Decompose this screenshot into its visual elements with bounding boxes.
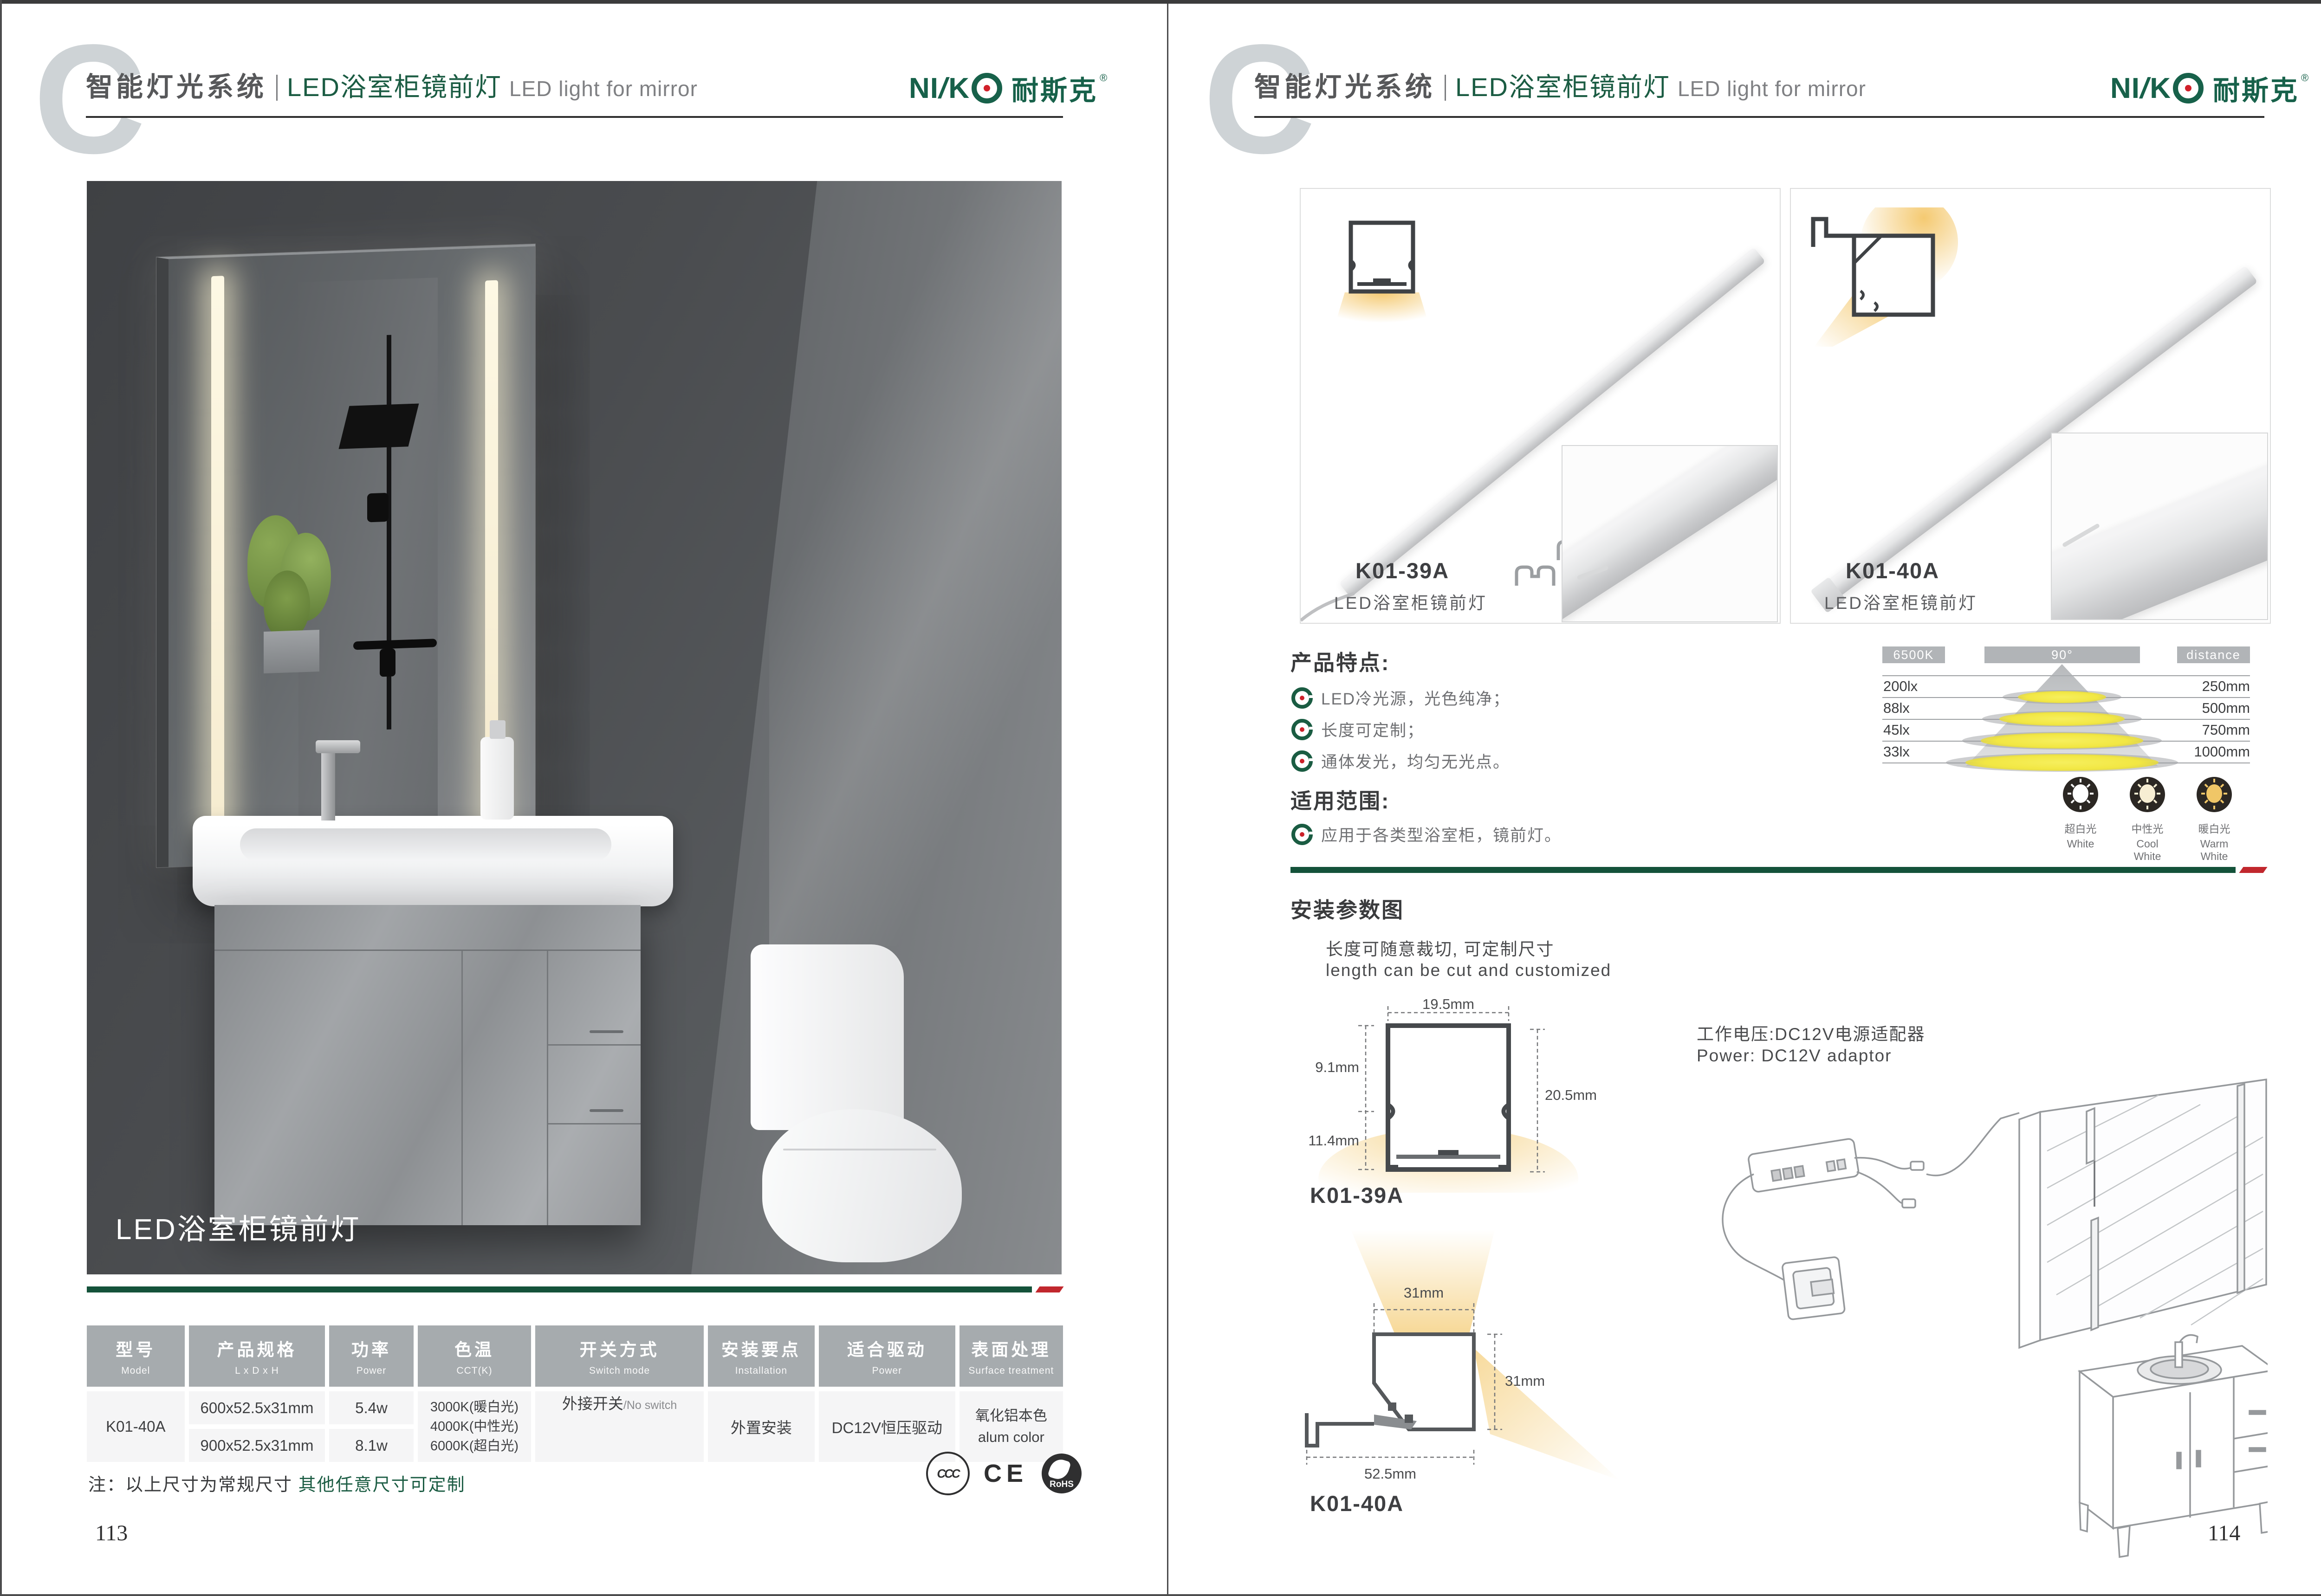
- cell-power-2: 8.1w: [329, 1429, 413, 1462]
- lux-label: 33lx: [1883, 743, 1910, 760]
- rohs-icon: RoHS: [1042, 1454, 1082, 1493]
- drawing-model-k01-39a: K01-39A: [1310, 1182, 1404, 1208]
- page-gutter-line: [1167, 4, 1168, 1596]
- chart-chip-distance: distance: [2177, 646, 2250, 663]
- vanity-handle-1: [590, 1030, 623, 1033]
- divider-green-left: [87, 1286, 1032, 1292]
- cell-cct: 3000K(暖白光) 4000K(中性光) 6000K(超白光): [418, 1391, 532, 1462]
- header-divider-bar: [276, 75, 278, 101]
- mirror-led-strip-left: [211, 276, 224, 833]
- cct-swatches: 超白光 White 中性光 Cool White 暖白光 W: [2055, 776, 2239, 863]
- product-card-k01-40a: K01-40A LED浴室柜镜前灯: [1790, 188, 2271, 624]
- cert-icons: CCC CE RoHS: [926, 1452, 1082, 1495]
- swatch-cool-white: 中性光 Cool White: [2122, 776, 2172, 863]
- cut-note-cn: 长度可随意裁切, 可定制尺寸: [1326, 935, 1555, 960]
- cell-sizes: 600x52.5x31mm 900x52.5x31mm: [189, 1391, 325, 1462]
- header-rule: [86, 116, 1063, 118]
- col-header-driver: 适合驱动Power: [819, 1325, 955, 1387]
- faucet: [321, 746, 335, 821]
- install-section-title: 安装参数图: [1290, 893, 1404, 924]
- col-header-installation: 安装要点Installation: [708, 1325, 815, 1387]
- dim-40-right: 31mm: [1505, 1373, 1545, 1389]
- brand-logo-o-icon: [2173, 73, 2204, 103]
- catalog-spread: C 智能灯光系统 LED浴室柜镜前灯 LED light for mirror …: [0, 0, 2321, 1596]
- dim-40-bottom: 52.5mm: [1337, 1466, 1444, 1482]
- col-header-switch: 开关方式Switch mode: [535, 1325, 703, 1387]
- swatch-white: 超白光 White: [2055, 776, 2106, 863]
- vanity-right-seam: [547, 951, 548, 1225]
- bulb-icon-cool-white: [2129, 776, 2166, 813]
- brand-logo-right: NI/K 耐斯克 ®: [2110, 69, 2308, 108]
- illuminance-chart: 6500K 90° distance 200lx 88lx 45lx 33lx …: [1882, 646, 2267, 773]
- cell-size-1: 600x52.5x31mm: [189, 1391, 325, 1424]
- power-note-en: Power: DC12V adaptor: [1697, 1046, 1892, 1066]
- vanity-drawer-seam-2: [547, 1123, 641, 1124]
- mirror-cabinet: [156, 244, 535, 867]
- brand-logo-o-icon: [972, 73, 1002, 103]
- size-note: 注：以上尺寸为常规尺寸 其他任意尺寸可定制: [88, 1470, 466, 1496]
- lux-label: 45lx: [1883, 722, 1910, 738]
- chart-chip-cct: 6500K: [1882, 646, 1945, 663]
- toilet-seat-line: [783, 1149, 936, 1150]
- product-model: K01-40A: [1846, 558, 1939, 583]
- page-header-right: 智能灯光系统 LED浴室柜镜前灯 LED light for mirror: [1254, 65, 1866, 104]
- dim-39-left-lower: 11.4mm: [1294, 1132, 1359, 1149]
- toilet-tank: [751, 944, 904, 1130]
- brand-logo-text: NI: [909, 72, 939, 105]
- photo-caption: LED浴室柜镜前灯: [116, 1206, 361, 1247]
- dim-39-right: 20.5mm: [1545, 1087, 1597, 1104]
- page-header: 智能灯光系统 LED浴室柜镜前灯 LED light for mirror: [86, 65, 698, 104]
- divider-red-left: [1035, 1286, 1063, 1292]
- cell-switch: 外接开关 /No switch: [535, 1391, 703, 1462]
- sink-inner-shadow: [240, 828, 611, 861]
- reflected-hand-shower: [367, 493, 389, 523]
- header-category: 智能灯光系统: [86, 65, 267, 104]
- ccc-icon: CCC: [926, 1452, 970, 1495]
- photo-light-streak: [769, 181, 1062, 946]
- profile-section-icon: [1333, 214, 1431, 330]
- reflected-plant: [238, 513, 345, 674]
- cell-power-1: 5.4w: [329, 1391, 413, 1424]
- product-model: K01-39A: [1355, 558, 1449, 583]
- dim-39-top: 19.5mm: [1386, 996, 1511, 1013]
- ce-icon: CE: [984, 1459, 1028, 1488]
- cell-powers: 5.4w 8.1w: [329, 1391, 413, 1462]
- lux-label: 200lx: [1883, 678, 1918, 695]
- spec-table-header-row: 型号Model 产品规格L x D x H 功率Power 色温CCT(K) 开…: [87, 1325, 1063, 1387]
- distance-label: 750mm: [2179, 722, 2250, 738]
- cell-installation: 外置安装: [708, 1391, 815, 1462]
- bulb-icon-white: [2062, 776, 2099, 813]
- col-header-power: 功率Power: [329, 1325, 413, 1387]
- vanity-cabinet: [214, 905, 641, 1225]
- bathroom-photo: LED浴室柜镜前灯: [87, 181, 1062, 1274]
- frame-left: [0, 0, 2, 1596]
- vanity-drawer-seam-1: [547, 1044, 641, 1046]
- product-name: LED浴室柜镜前灯: [1824, 589, 1977, 614]
- size-note-black: 注：以上尺寸为常规尺寸: [88, 1475, 298, 1495]
- vanity-top-seam: [214, 950, 641, 951]
- divider-green-right: [1290, 867, 2236, 873]
- header-title-en: LED light for mirror: [509, 76, 698, 101]
- product-card-k01-39a: K01-39A LED浴室柜镜前灯: [1300, 188, 1781, 624]
- feature-item: 通体发光，均匀无光点。: [1291, 749, 1510, 773]
- page-number-right: 114: [2208, 1520, 2240, 1546]
- spec-table-value-row: K01-40A 600x52.5x31mm 900x52.5x31mm 5.4w…: [87, 1391, 1063, 1462]
- plant-pot: [264, 630, 319, 673]
- section-drawing-k01-40a: [1295, 1230, 1620, 1490]
- page-number-left: 113: [95, 1520, 128, 1546]
- features-title: 产品特点:: [1290, 646, 1390, 677]
- col-header-surface: 表面处理Surface treatment: [960, 1325, 1063, 1387]
- application-item: 应用于各类型浴室柜，镜前灯。: [1291, 822, 1562, 846]
- faucet-spout: [316, 740, 360, 753]
- lux-label: 88lx: [1883, 700, 1910, 717]
- header-title-cn: LED浴室柜镜前灯: [287, 66, 502, 104]
- col-header-model: 型号Model: [87, 1325, 185, 1387]
- drawing-model-k01-40a: K01-40A: [1310, 1491, 1404, 1516]
- soap-bottle: [480, 737, 514, 820]
- feature-item: 长度可定制；: [1291, 717, 1424, 741]
- frame-top: [0, 0, 2321, 4]
- reflected-valve-knob: [380, 648, 395, 677]
- detail-inset-k01-40a: [2051, 433, 2268, 620]
- feature-bullet-icon: [1291, 750, 1313, 772]
- chart-chip-beam: 90°: [1984, 646, 2140, 663]
- application-title: 适用范围:: [1290, 784, 1390, 815]
- col-header-cct: 色温CCT(K): [418, 1325, 532, 1387]
- detail-inset-k01-39a: [1562, 445, 1778, 622]
- size-note-green: 其他任意尺寸可定制: [298, 1475, 466, 1495]
- product-name: LED浴室柜镜前灯: [1334, 589, 1487, 614]
- vanity-handle-2: [590, 1109, 623, 1112]
- reflected-shower-head: [339, 404, 419, 449]
- swatch-warm-white: 暖白光 Warm White: [2189, 776, 2239, 863]
- vanity-door-seam: [461, 951, 463, 1225]
- bulb-icon-warm-white: [2196, 776, 2233, 813]
- distance-label: 250mm: [2179, 678, 2250, 695]
- corner-profile-icon: [1805, 207, 1958, 347]
- power-note-cn: 工作电压:DC12V电源适配器: [1697, 1020, 1926, 1045]
- frame-bottom: [0, 1594, 2321, 1596]
- dim-39-left-upper: 9.1mm: [1300, 1059, 1359, 1076]
- dim-40-top: 31mm: [1370, 1285, 1477, 1301]
- feature-bullet-icon: [1291, 719, 1313, 740]
- col-header-size: 产品规格L x D x H: [189, 1325, 325, 1387]
- header-rule-right: [1254, 116, 2264, 118]
- spec-table: 型号Model 产品规格L x D x H 功率Power 色温CCT(K) 开…: [87, 1325, 1063, 1462]
- application-bullet-icon: [1291, 824, 1313, 845]
- cell-model: K01-40A: [87, 1391, 185, 1462]
- feature-item: LED冷光源，光色纯净；: [1291, 686, 1510, 710]
- registered-mark: ®: [1100, 72, 1107, 84]
- brand-logo-cn: 耐斯克: [1011, 69, 1098, 108]
- feature-bullet-icon: [1291, 687, 1313, 709]
- installation-illustration: [1694, 1067, 2268, 1559]
- brand-logo: NI/K 耐斯克 ®: [909, 69, 1107, 108]
- divider-red-right: [2239, 867, 2267, 873]
- cut-note-en: length can be cut and customized: [1326, 961, 1611, 980]
- distance-label: 1000mm: [2179, 743, 2250, 760]
- distance-label: 500mm: [2179, 700, 2250, 717]
- soap-pump: [490, 720, 506, 739]
- cell-size-2: 900x52.5x31mm: [189, 1429, 325, 1462]
